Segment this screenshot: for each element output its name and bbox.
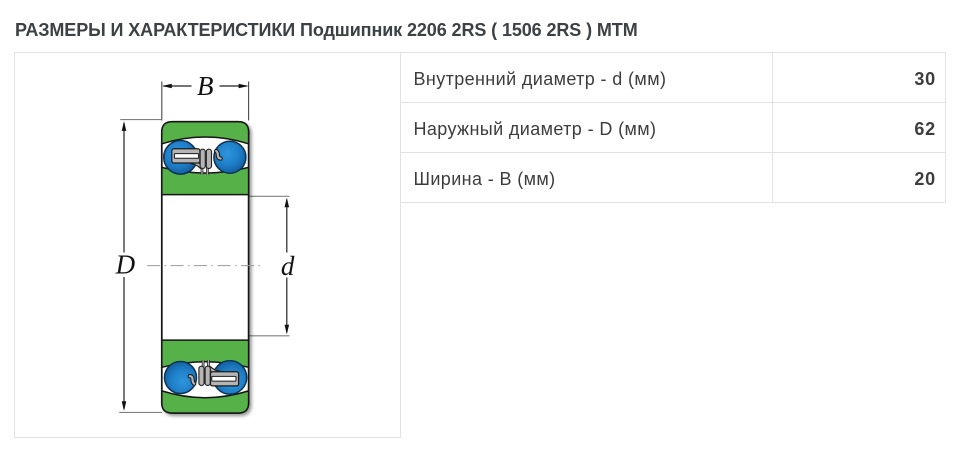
svg-text:D: D bbox=[115, 250, 136, 280]
svg-text:d: d bbox=[281, 251, 295, 281]
svg-text:B: B bbox=[197, 71, 214, 101]
